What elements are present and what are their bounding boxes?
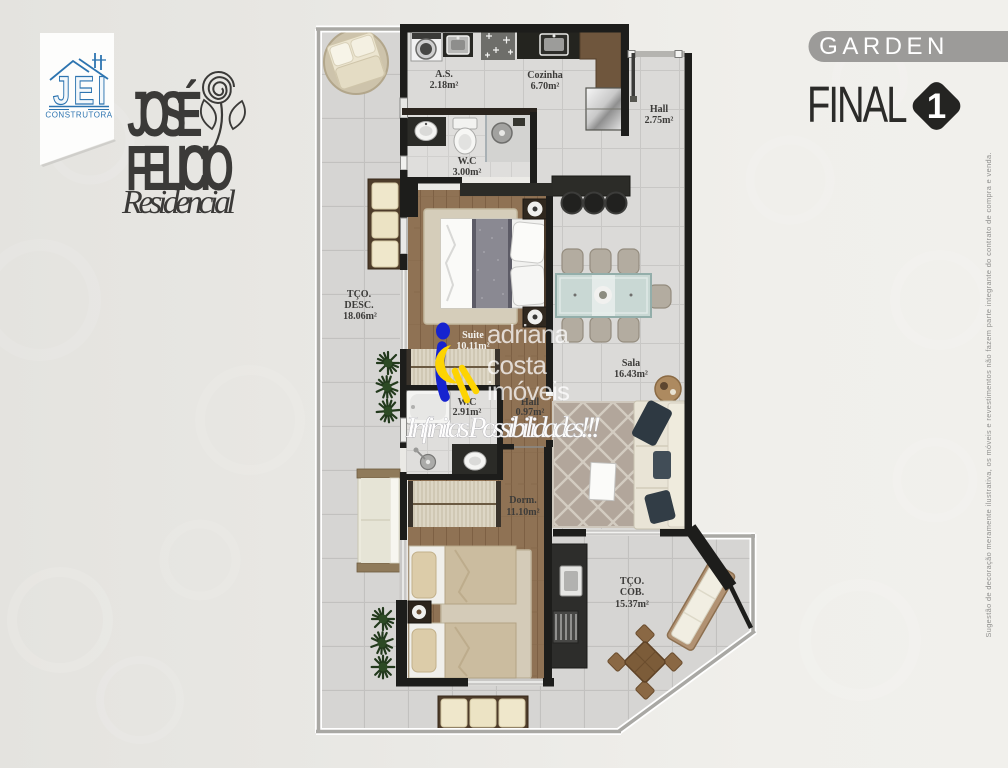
svg-text:Suite: Suite: [462, 330, 484, 341]
svg-text:COB.: COB.: [620, 587, 645, 598]
svg-text:Residencial: Residencial: [121, 184, 236, 221]
svg-text:2.75m²: 2.75m²: [645, 115, 674, 126]
svg-text:GARDEN: GARDEN: [819, 33, 949, 60]
svg-text:adriana: adriana: [487, 319, 570, 349]
svg-text:CONSTRUTORA: CONSTRUTORA: [45, 111, 112, 120]
svg-text:1: 1: [927, 87, 946, 126]
svg-text:imóveis: imóveis: [487, 376, 570, 406]
svg-text:11.10m²: 11.10m²: [506, 507, 539, 518]
svg-text:TÇO.: TÇO.: [347, 289, 372, 300]
svg-text:Infinitas Possibilidades!!!: Infinitas Possibilidades!!!: [405, 411, 601, 444]
svg-text:18.06m²: 18.06m²: [343, 311, 377, 322]
svg-text:16.43m²: 16.43m²: [614, 369, 648, 380]
svg-text:Cozinha: Cozinha: [527, 70, 563, 81]
svg-text:2.18m²: 2.18m²: [430, 80, 459, 91]
svg-text:FINAL: FINAL: [807, 76, 911, 134]
svg-text:Dorm.: Dorm.: [509, 495, 537, 506]
svg-text:Sugestão de decoração merament: Sugestão de decoração meramente ilustrat…: [984, 153, 993, 638]
svg-text:DESC.: DESC.: [344, 300, 374, 311]
svg-text:Sala: Sala: [622, 358, 640, 369]
svg-text:15.37m²: 15.37m²: [615, 599, 649, 610]
svg-text:A.S.: A.S.: [435, 69, 453, 80]
svg-text:3.00m²: 3.00m²: [453, 167, 482, 178]
svg-text:TÇO.: TÇO.: [620, 576, 645, 587]
svg-text:6.70m²: 6.70m²: [531, 81, 560, 92]
svg-text:10.11m²: 10.11m²: [456, 341, 489, 352]
svg-text:W.C: W.C: [458, 156, 477, 167]
svg-text:Hall: Hall: [650, 104, 669, 115]
